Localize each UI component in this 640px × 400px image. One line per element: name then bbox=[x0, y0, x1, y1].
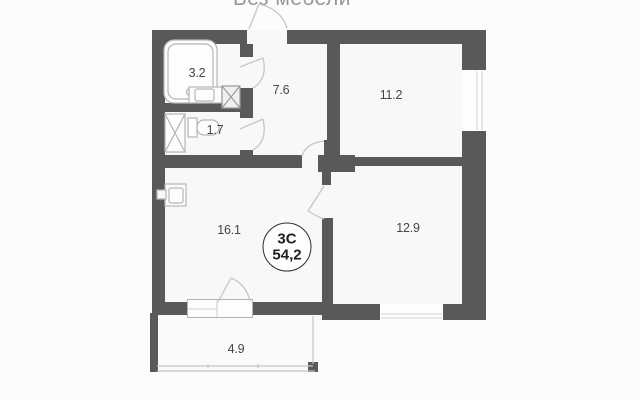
room-door-swing-icon bbox=[308, 186, 324, 219]
wc-door-swing-icon bbox=[240, 119, 264, 150]
bathroom-door-swing-icon bbox=[240, 58, 264, 88]
apartment-type-label: 3C bbox=[277, 231, 296, 247]
room-area-label-room: 12.9 bbox=[396, 221, 420, 235]
room-area-label-kitchen-living: 16.1 bbox=[217, 223, 241, 237]
hall-door-swing-icon bbox=[302, 141, 324, 156]
apartment-badge: 3C 54,2 bbox=[263, 223, 312, 272]
room-area-label-hallway: 7.6 bbox=[273, 83, 290, 97]
washing-machine-icon bbox=[165, 114, 185, 152]
kitchen-sink-icon bbox=[157, 184, 186, 206]
apartment-total-area: 54,2 bbox=[272, 247, 301, 263]
room-area-label-bedroom: 11.2 bbox=[380, 88, 403, 102]
floor-plan: Без мебели bbox=[0, 0, 640, 400]
balcony-door-swing-icon bbox=[218, 278, 250, 302]
room-area-label-balcony: 4.9 bbox=[228, 342, 245, 356]
vent-shaft-icon bbox=[222, 86, 240, 108]
room-area-label-wc: 1.7 bbox=[207, 123, 224, 137]
room-area-label-bathroom: 3.2 bbox=[189, 66, 206, 80]
bathroom-sink-icon bbox=[189, 87, 222, 103]
entrance-door-swing-icon bbox=[249, 4, 287, 29]
linework-layer bbox=[0, 0, 640, 400]
